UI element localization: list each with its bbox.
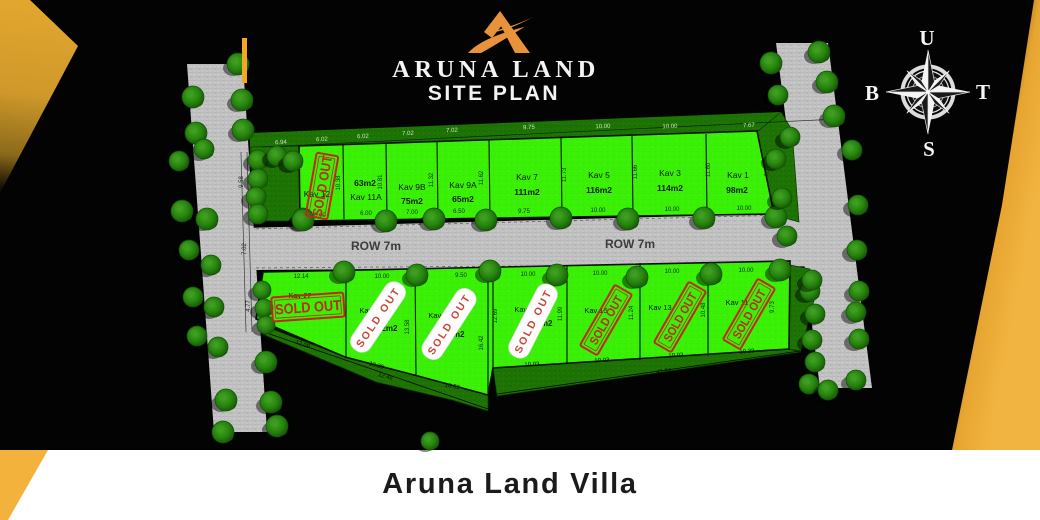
- svg-text:9.50: 9.50: [455, 273, 467, 279]
- svg-text:10.03: 10.03: [524, 361, 540, 368]
- svg-text:11.32: 11.32: [429, 172, 435, 187]
- svg-text:10.00: 10.00: [590, 208, 606, 214]
- svg-text:16.42: 16.42: [479, 335, 485, 351]
- svg-text:9.73: 9.73: [770, 301, 776, 313]
- svg-text:13.58: 13.58: [405, 319, 411, 335]
- svg-text:Kav 9B: Kav 9B: [398, 182, 426, 192]
- svg-text:10.00: 10.00: [664, 269, 680, 275]
- svg-text:6.02: 6.02: [357, 134, 370, 140]
- svg-text:Kav 13: Kav 13: [648, 303, 671, 312]
- svg-text:7.02: 7.02: [402, 131, 415, 137]
- svg-text:10.03: 10.03: [594, 357, 610, 364]
- svg-text:ARUNA LAND: ARUNA LAND: [392, 56, 600, 83]
- svg-text:Kav 1: Kav 1: [727, 170, 749, 180]
- svg-text:12.69: 12.69: [493, 308, 499, 324]
- svg-text:10.48: 10.48: [701, 302, 707, 318]
- svg-text:11.73: 11.73: [562, 167, 568, 182]
- svg-text:Aruna Land Villa: Aruna Land Villa: [382, 468, 638, 500]
- svg-text:7.02: 7.02: [446, 128, 459, 134]
- svg-text:10.00: 10.00: [595, 124, 611, 131]
- svg-text:6.94: 6.94: [275, 140, 288, 146]
- svg-text:98m2: 98m2: [726, 185, 748, 195]
- svg-text:114m2: 114m2: [657, 183, 683, 193]
- svg-text:10.23: 10.23: [739, 348, 755, 355]
- svg-text:6.02: 6.02: [316, 137, 329, 143]
- svg-text:116m2: 116m2: [586, 185, 612, 195]
- svg-text:Kav 11A: Kav 11A: [350, 192, 382, 202]
- svg-text:U: U: [919, 26, 934, 50]
- svg-text:111m2: 111m2: [514, 187, 540, 197]
- svg-text:Kav 9A: Kav 9A: [449, 180, 477, 190]
- svg-text:B: B: [865, 81, 879, 105]
- svg-text:11.99: 11.99: [558, 306, 564, 321]
- svg-text:10.81: 10.81: [378, 174, 384, 190]
- svg-text:ROW 7m: ROW 7m: [351, 239, 401, 253]
- svg-text:11.60: 11.60: [706, 162, 712, 177]
- svg-text:10.00: 10.00: [520, 272, 536, 278]
- svg-text:6.00: 6.00: [360, 211, 372, 217]
- svg-text:12.14: 12.14: [293, 274, 309, 280]
- svg-text:T: T: [976, 80, 990, 104]
- svg-text:11.24: 11.24: [629, 305, 635, 320]
- svg-text:10.00: 10.00: [592, 271, 608, 277]
- svg-text:SITE PLAN: SITE PLAN: [428, 82, 560, 105]
- svg-text:7.00: 7.00: [406, 210, 418, 216]
- svg-text:S: S: [923, 137, 935, 161]
- svg-text:10.38: 10.38: [336, 175, 342, 191]
- svg-text:7.67: 7.67: [743, 123, 756, 129]
- svg-text:75m2: 75m2: [401, 196, 423, 206]
- svg-text:10.00: 10.00: [664, 207, 680, 213]
- svg-text:10.00: 10.00: [736, 206, 752, 212]
- svg-text:ROW 7m: ROW 7m: [605, 237, 655, 251]
- svg-text:Kav 7: Kav 7: [516, 172, 538, 182]
- svg-text:63m2: 63m2: [354, 178, 376, 188]
- svg-text:11.66: 11.66: [633, 164, 639, 179]
- svg-text:6.50: 6.50: [453, 209, 465, 215]
- svg-text:65m2: 65m2: [452, 194, 474, 204]
- svg-text:Kav 5: Kav 5: [588, 170, 610, 180]
- svg-text:11.62: 11.62: [479, 170, 485, 185]
- svg-text:10.00: 10.00: [738, 268, 754, 274]
- svg-text:7.02: 7.02: [242, 243, 248, 255]
- svg-text:10.00: 10.00: [374, 274, 390, 280]
- svg-text:10.03: 10.03: [668, 352, 684, 359]
- svg-text:9.75: 9.75: [518, 209, 530, 215]
- svg-text:10.00: 10.00: [662, 124, 678, 131]
- svg-text:9.75: 9.75: [523, 125, 536, 131]
- svg-text:Kav 3: Kav 3: [659, 168, 681, 178]
